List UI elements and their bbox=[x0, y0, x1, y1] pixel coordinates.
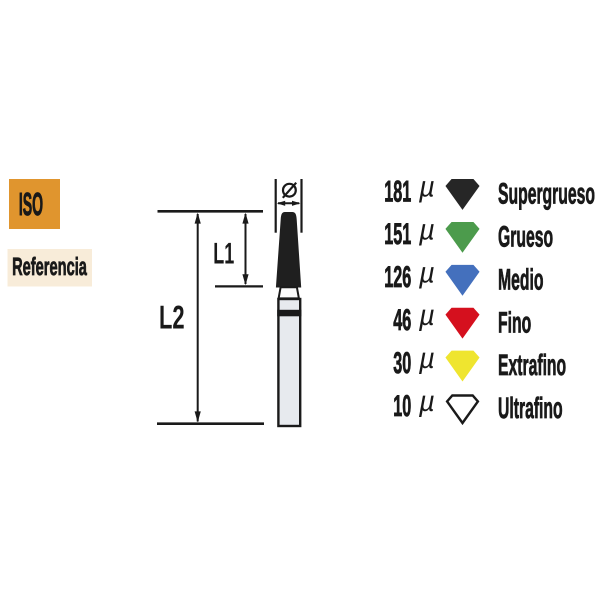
svg-text:L2: L2 bbox=[159, 299, 185, 336]
svg-text:µ: µ bbox=[418, 214, 435, 246]
svg-text:µ: µ bbox=[418, 386, 435, 418]
svg-text:L1: L1 bbox=[213, 237, 234, 270]
svg-text:30: 30 bbox=[393, 347, 411, 380]
svg-text:10: 10 bbox=[393, 390, 411, 423]
svg-text:Ultrafino: Ultrafino bbox=[498, 392, 563, 425]
svg-text:µ: µ bbox=[418, 300, 435, 332]
svg-text:Referencia: Referencia bbox=[12, 253, 87, 281]
svg-text:Extrafino: Extrafino bbox=[498, 349, 566, 382]
svg-text:ISO: ISO bbox=[19, 186, 43, 222]
svg-text:Supergrueso: Supergrueso bbox=[498, 178, 595, 211]
svg-text:151: 151 bbox=[384, 218, 411, 251]
svg-text:126: 126 bbox=[384, 261, 411, 294]
svg-text:Fino: Fino bbox=[498, 306, 531, 339]
svg-text:181: 181 bbox=[384, 175, 411, 208]
svg-text:µ: µ bbox=[418, 257, 435, 289]
svg-text:46: 46 bbox=[393, 304, 411, 337]
svg-text:µ: µ bbox=[418, 343, 435, 375]
svg-text:Medio: Medio bbox=[498, 263, 543, 296]
svg-text:µ: µ bbox=[418, 172, 435, 204]
svg-text:Grueso: Grueso bbox=[498, 221, 553, 254]
